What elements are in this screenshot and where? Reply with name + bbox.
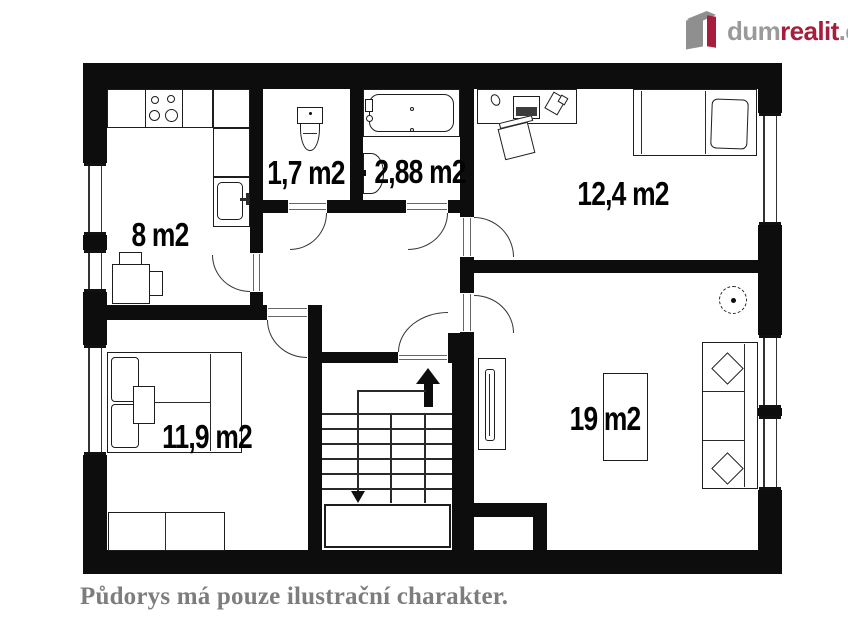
window-kitchen-1 [84, 163, 106, 235]
logo-wordmark: dumrealit.cz [727, 16, 848, 47]
bed-duvet-edge [705, 91, 706, 154]
wall-outer-right [758, 63, 782, 113]
wall-outer-right [758, 490, 782, 574]
wall-hall-top [327, 200, 363, 213]
wardrobe-divider [165, 513, 166, 550]
window-bedroom-lower [84, 345, 106, 455]
stair-direction-arrow-head [351, 491, 365, 503]
disclaimer-caption: Půdorys má pouze ilustrační charakter. [80, 583, 508, 611]
bath-drain-dot [410, 128, 414, 132]
wall-outer-top [83, 63, 782, 89]
wall-bedroom-top [107, 305, 267, 320]
wall-outer-left [83, 63, 107, 163]
door-arc-wc [290, 213, 327, 250]
room-label-bathroom: 2,88 m2 [374, 153, 465, 191]
wall-kitchen-right [250, 89, 263, 253]
logo-text-dum: dum [727, 16, 780, 46]
bath-knob [366, 115, 373, 122]
stove-burner [167, 95, 175, 103]
door-opening-bathroom [406, 200, 448, 213]
bath-faucet [365, 99, 373, 112]
wall-outer-left [83, 235, 107, 250]
door-arc-bedroom-lower [267, 320, 307, 358]
kitchen-faucet [246, 193, 249, 205]
kitchen-cabinet [213, 128, 250, 177]
window-bedroom-upper [759, 113, 781, 225]
wall-bedroom-right [308, 305, 322, 550]
stair-landing [324, 504, 451, 548]
bath-drain-dot [410, 107, 414, 111]
door-arc-stairs [398, 312, 448, 352]
sofa-cushion-divider [703, 391, 745, 392]
wall-bedroom-upper-left [460, 63, 474, 217]
toilet-bowl [300, 123, 320, 151]
wall-hall-top [363, 200, 406, 213]
wall-outer-left [83, 292, 107, 345]
wall-stairs-right [452, 363, 474, 550]
door-opening-bedroom-upper [460, 217, 474, 257]
bed-rail [641, 91, 642, 154]
bathtub-inner [369, 94, 454, 132]
room-label-kitchen: 8 m2 [132, 216, 189, 254]
logo-right-face [707, 15, 716, 47]
wall-alcove-right [533, 517, 547, 550]
wall-corner-hall [448, 333, 474, 363]
kitchen-sink [217, 182, 243, 220]
door-opening-bedroom-lower [267, 305, 308, 320]
door-opening-living [460, 293, 474, 332]
wall-alcove-top [474, 503, 547, 517]
nightstand [133, 386, 155, 424]
door-arc-living [474, 295, 514, 333]
wall-hall-top [263, 200, 288, 213]
wardrobe [108, 512, 225, 551]
door-opening-kitchen [250, 253, 263, 292]
room-label-bedroom-lower: 11,9 m2 [162, 418, 252, 456]
wall-stairs-top [322, 352, 398, 363]
window-living-1 [759, 335, 781, 408]
sofa-back-line [744, 344, 745, 487]
stove-burner [151, 96, 159, 104]
stairs-up-arrow [424, 382, 433, 407]
plant-center-dot [731, 298, 736, 303]
wall-outer-left [83, 455, 107, 574]
dining-chair [149, 271, 163, 296]
door-arc-bathroom [408, 213, 448, 250]
room-label-living: 19 m2 [570, 400, 641, 438]
sofa-cushion-divider [703, 440, 745, 441]
dumrealit-cube-icon [686, 11, 720, 51]
wall-outer-bottom [83, 550, 782, 574]
wall-bedroom-upper-left [460, 257, 474, 293]
stairs-up-arrow-head [416, 368, 440, 384]
bed-pillow [710, 98, 749, 149]
sink-tap [361, 170, 366, 176]
wall-outer-right [758, 225, 782, 335]
stove-burner [165, 109, 178, 122]
wall-living-top [474, 260, 758, 273]
door-opening-stairs [398, 352, 448, 363]
door-arc-kitchen [212, 255, 250, 292]
logo-left-face [686, 18, 703, 50]
kitchen-cabinet [213, 89, 250, 128]
window-living-2 [759, 416, 781, 490]
logo-text-cz: .cz [839, 16, 848, 46]
tv-screen-line [489, 374, 490, 436]
toilet-flush-dot [309, 112, 312, 115]
stair-direction-line [358, 390, 426, 392]
wall-wc-bathroom [350, 63, 363, 213]
floorplan-page: dumrealit.cz [0, 0, 848, 636]
laptop-keyboard [516, 107, 537, 116]
kitchen-faucet [240, 198, 250, 201]
door-arc-bedroom-upper [474, 217, 514, 257]
stove-burner [149, 110, 160, 121]
stair-direction-line [357, 390, 359, 491]
room-label-wc: 1,7 m2 [267, 154, 344, 192]
door-opening-wc [288, 200, 327, 213]
room-label-bedroom-upper: 12,4 m2 [577, 175, 668, 213]
desk-chair [498, 122, 536, 161]
dining-table [112, 264, 150, 304]
toilet-tank [297, 107, 323, 124]
stove [145, 89, 183, 128]
logo-text-realit: realit [780, 16, 839, 46]
wall-outer-right [758, 408, 782, 416]
toilet-seat-line [303, 133, 317, 134]
dumrealit-logo: dumrealit.cz [686, 11, 848, 51]
window-kitchen-2 [84, 250, 106, 292]
